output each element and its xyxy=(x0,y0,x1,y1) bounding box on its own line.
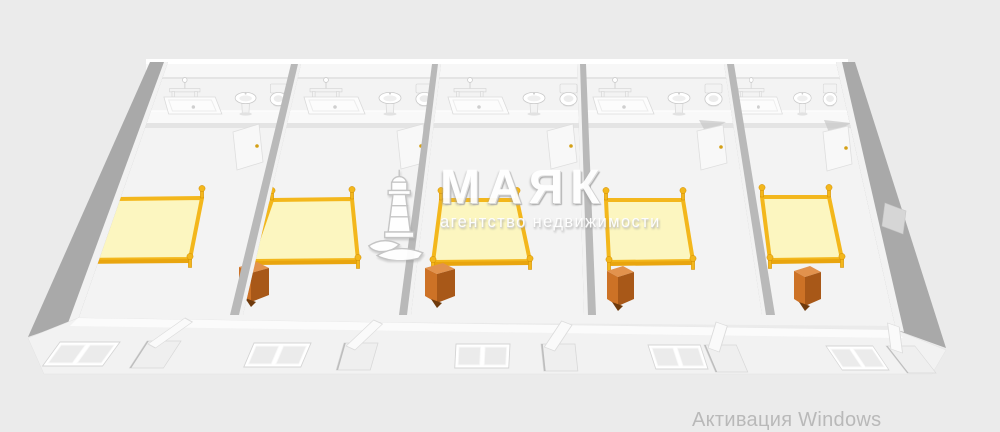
front-wall xyxy=(28,318,946,374)
window-room-2 xyxy=(244,343,311,367)
window-room-4 xyxy=(648,345,708,369)
window-room-3 xyxy=(455,344,510,368)
floorplan-viewport: МАЯК агентство недвижимости Активация Wi… xyxy=(0,0,1000,432)
double-bed-room-4 xyxy=(603,187,696,270)
floorplan-render xyxy=(0,0,1000,432)
bathroom-door-room-1 xyxy=(233,124,263,170)
bathroom-door-room-5 xyxy=(823,120,852,171)
double-bed-room-3 xyxy=(430,187,533,270)
bathroom-door-room-3 xyxy=(547,124,577,169)
back-wall xyxy=(146,59,848,79)
windows-activation-text: Активация Windows xyxy=(692,409,881,432)
